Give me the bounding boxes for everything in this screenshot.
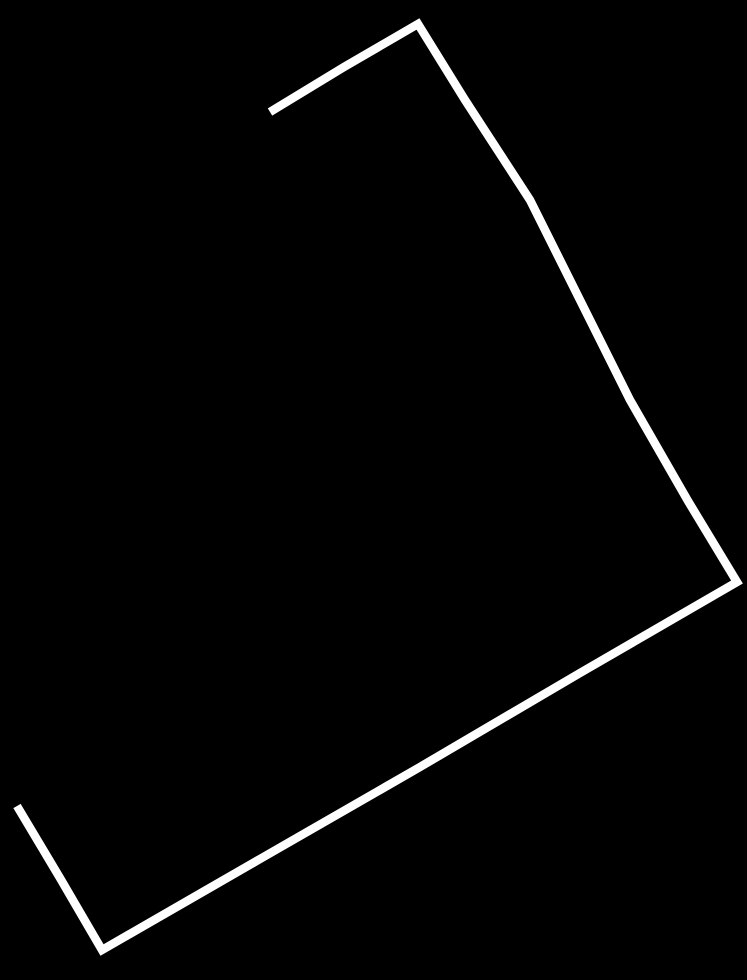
sketch-canvas	[0, 0, 747, 980]
sketch-drawing	[0, 0, 747, 980]
sketch-stroke	[17, 24, 737, 950]
